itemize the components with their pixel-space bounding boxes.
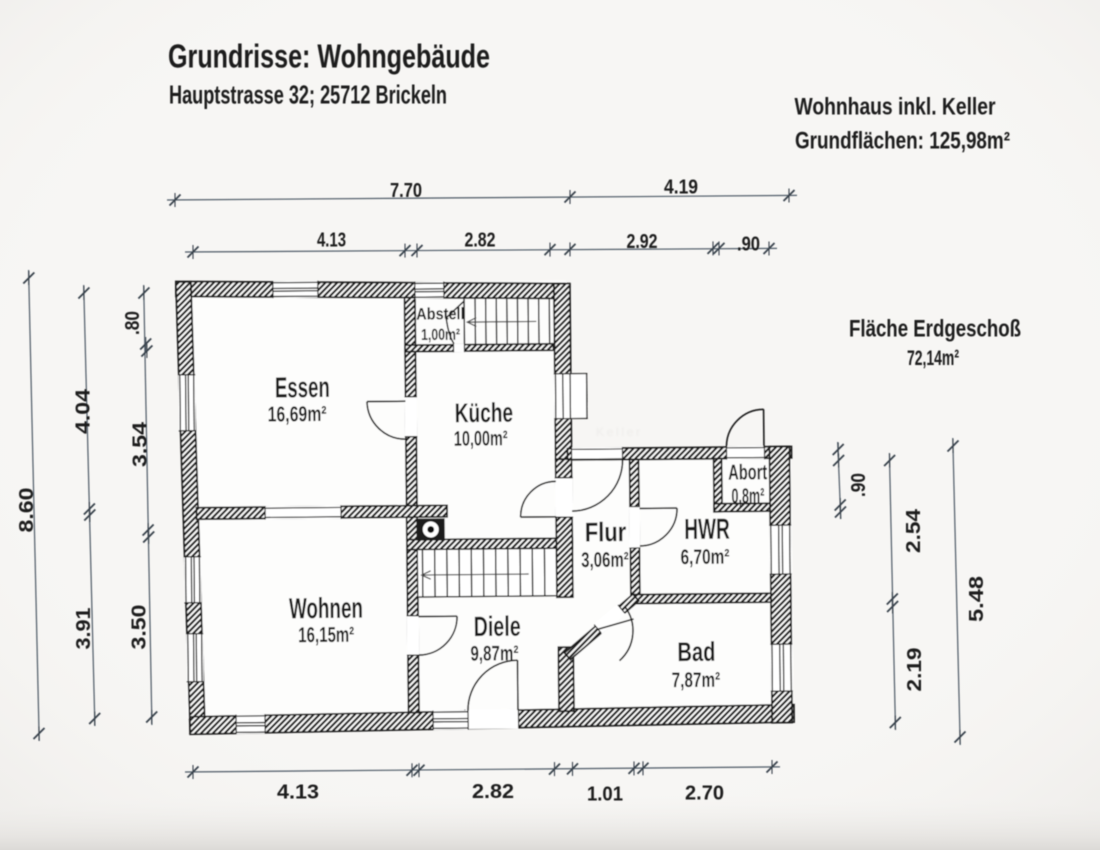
svg-text:Grundrisse: Wohngebäude: Grundrisse: Wohngebäude <box>168 38 490 75</box>
svg-text:3.91: 3.91 <box>73 608 95 650</box>
svg-text:Wohnen: Wohnen <box>289 593 363 626</box>
svg-text:Grundflächen: 125,98m²: Grundflächen: 125,98m² <box>795 128 1010 155</box>
svg-text:Bad: Bad <box>677 637 715 667</box>
svg-text:Küche: Küche <box>454 398 513 429</box>
svg-text:1,00m²: 1,00m² <box>421 327 460 344</box>
svg-text:Essen: Essen <box>275 372 330 405</box>
svg-text:.90: .90 <box>737 234 760 256</box>
svg-text:Wohnhaus inkl. Keller: Wohnhaus inkl. Keller <box>795 94 996 121</box>
svg-text:2.54: 2.54 <box>903 508 925 553</box>
svg-text:4.04: 4.04 <box>73 388 95 434</box>
svg-text:2.82: 2.82 <box>472 780 514 803</box>
svg-text:5.48: 5.48 <box>966 576 988 622</box>
svg-text:0,8m²: 0,8m² <box>731 485 764 508</box>
svg-text:.80: .80 <box>122 311 144 335</box>
svg-text:HWR: HWR <box>684 514 730 546</box>
svg-text:2.19: 2.19 <box>904 648 926 692</box>
svg-text:10,00m²: 10,00m² <box>454 427 508 451</box>
svg-text:7.70: 7.70 <box>390 180 422 202</box>
svg-text:7,87m²: 7,87m² <box>672 669 721 692</box>
svg-text:3,06m²: 3,06m² <box>581 549 629 572</box>
svg-text:16,69m²: 16,69m² <box>268 402 327 427</box>
svg-text:2.92: 2.92 <box>627 231 658 253</box>
svg-text:Fläche Erdgeschoß: Fläche Erdgeschoß <box>849 316 1021 343</box>
svg-text:2.82: 2.82 <box>465 230 496 252</box>
svg-text:6,70m²: 6,70m² <box>680 546 729 569</box>
svg-text:4.13: 4.13 <box>317 230 346 252</box>
svg-text:1.01: 1.01 <box>587 782 623 805</box>
svg-text:Abort: Abort <box>728 460 767 484</box>
svg-text:3.50: 3.50 <box>129 605 151 650</box>
svg-text:72,14m²: 72,14m² <box>907 346 959 370</box>
svg-text:3.54: 3.54 <box>130 421 152 467</box>
svg-text:4.13: 4.13 <box>277 781 319 804</box>
svg-text:9,87m²: 9,87m² <box>470 642 518 665</box>
svg-text:8.60: 8.60 <box>16 488 38 533</box>
svg-text:Abstell: Abstell <box>416 304 465 323</box>
svg-text:.90: .90 <box>848 473 870 497</box>
svg-text:Flur: Flur <box>585 517 627 547</box>
svg-text:16,15m²: 16,15m² <box>298 623 354 648</box>
svg-text:Hauptstrasse 32; 25712 Brickel: Hauptstrasse 32; 25712 Brickeln <box>169 80 447 110</box>
svg-text:4.19: 4.19 <box>664 177 698 199</box>
svg-text:2.70: 2.70 <box>685 782 724 805</box>
svg-text:Diele: Diele <box>474 611 521 642</box>
